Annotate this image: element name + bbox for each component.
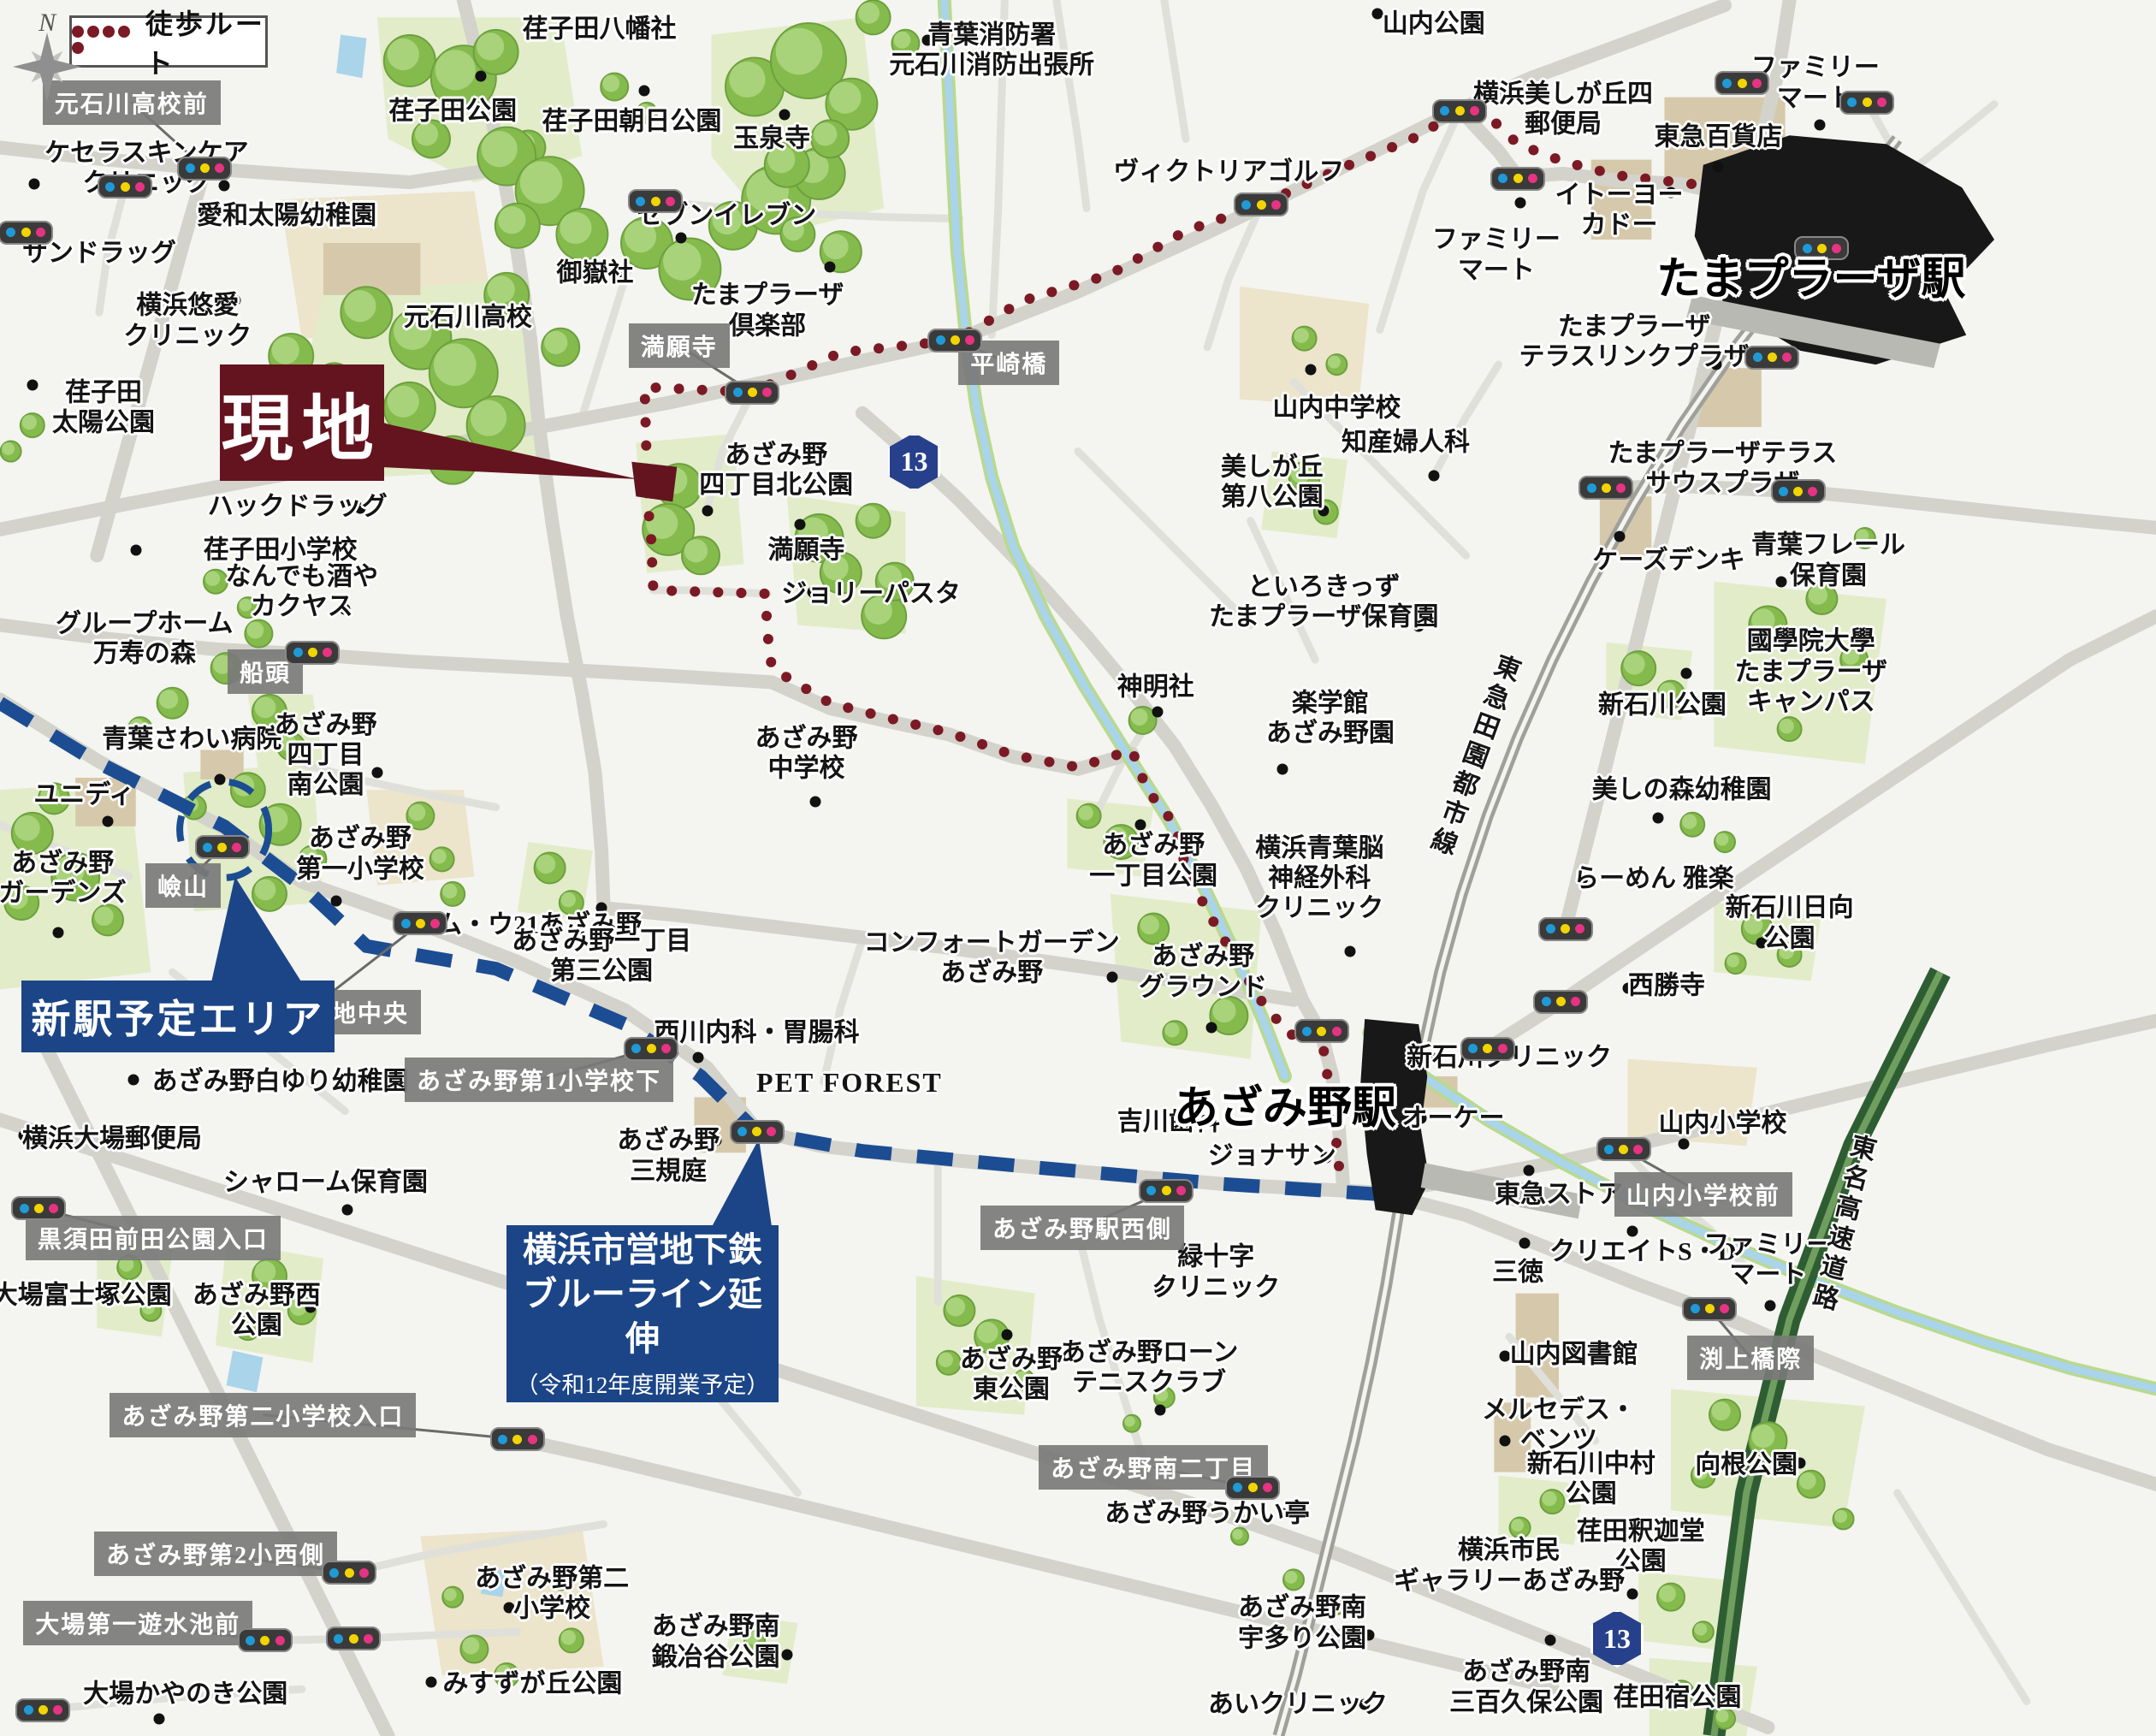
- landmark-dot-icon: [1519, 1237, 1530, 1248]
- map-label: あざみ野うかい亭: [1105, 1499, 1310, 1529]
- map-label: あざみ野南宇多り公園: [1238, 1593, 1366, 1654]
- tree-icon-highlight: [1131, 708, 1148, 726]
- tree-icon-highlight: [1779, 719, 1793, 733]
- map-label: ジョナサン: [1208, 1141, 1336, 1171]
- landmark-dot-icon: [29, 179, 40, 190]
- tree-icon-highlight: [408, 804, 425, 821]
- map-label: 愛和太陽幼稚園: [197, 200, 376, 230]
- traffic-signal-icon: [1839, 91, 1894, 115]
- map-label: 荏子田公園: [388, 96, 517, 126]
- bus-stop-label: 渕上橋際: [1687, 1336, 1814, 1380]
- traffic-signal-icon: [195, 835, 250, 859]
- bus-stop-label: 山内小学校前: [1614, 1172, 1792, 1217]
- tree-icon-highlight: [1711, 1401, 1730, 1420]
- landmark-dot-icon: [1652, 812, 1663, 823]
- tree-icon-highlight: [977, 1322, 998, 1343]
- traffic-signal-icon: [1533, 990, 1588, 1014]
- map-label: シャローム保育園: [223, 1167, 428, 1197]
- new-station-box: 新駅予定エリア: [21, 981, 334, 1052]
- tree-icon-highlight: [435, 50, 476, 90]
- map-label: 荏田宿公園: [1614, 1683, 1742, 1713]
- traffic-signal-icon: [1139, 1179, 1193, 1203]
- landmark-dot-icon: [779, 109, 791, 120]
- map-label: 美しの森幼稚園: [1592, 774, 1772, 804]
- tree-icon-highlight: [431, 849, 446, 863]
- map-label: あざみ野第二小学校: [475, 1563, 629, 1624]
- landmark-dot-icon: [1277, 763, 1288, 774]
- map-label: PET FOREST: [756, 1067, 943, 1099]
- bus-stop-label: あざみ野第1小学校下: [405, 1058, 673, 1102]
- landmark-dot-icon: [1764, 1300, 1775, 1311]
- map-label: あざみ野ローンテニスクラブ: [1060, 1337, 1239, 1398]
- map-label: 横浜悠愛クリニック: [123, 291, 252, 352]
- tree-icon-highlight: [94, 907, 113, 926]
- map-label: ユニディ: [33, 780, 134, 810]
- map-label: 玉泉寺: [733, 124, 810, 154]
- compass-north-label: N: [38, 9, 56, 38]
- traffic-signal-icon: [1596, 1137, 1651, 1161]
- tree-icon-highlight: [1328, 356, 1341, 369]
- map-label: コンフォートガーデンあざみ野: [864, 928, 1120, 989]
- map-label: ケーズデンキ: [1592, 546, 1745, 576]
- tree-icon-highlight: [602, 75, 619, 92]
- map-label: 國學院大學たまプラーザキャンパス: [1735, 626, 1888, 717]
- landmark-dot-icon: [475, 71, 486, 82]
- traffic-signal-icon: [0, 221, 53, 245]
- traffic-signal-icon: [624, 1037, 678, 1061]
- tree-icon-highlight: [388, 386, 419, 418]
- landmark-dot-icon: [1626, 1588, 1638, 1599]
- map-label: 緑十字クリニック: [1152, 1242, 1280, 1303]
- tree-icon-highlight: [246, 622, 264, 639]
- landmark-dot-icon: [1135, 819, 1146, 830]
- tree-icon-highlight: [159, 690, 178, 708]
- tree-icon-highlight: [946, 1297, 965, 1316]
- landmark-dot-icon: [341, 1205, 352, 1216]
- map-label: あざみ野三規庭: [617, 1126, 720, 1187]
- legend: 徒歩ルート: [69, 15, 269, 68]
- map-label: メルセデス・ベンツ: [1482, 1395, 1636, 1455]
- traffic-signal-icon: [1294, 1019, 1349, 1043]
- map-label: たまプラーザテラスリンクプラザ: [1519, 311, 1749, 372]
- traffic-signal-icon: [1234, 193, 1288, 216]
- site-label: 現地: [222, 371, 382, 475]
- tree-icon-highlight: [663, 242, 702, 281]
- landmark-dot-icon: [215, 774, 226, 785]
- landmark-dot-icon: [27, 380, 38, 391]
- landmark-dot-icon: [331, 896, 342, 907]
- tree-icon-highlight: [462, 1638, 479, 1655]
- tree-icon-highlight: [388, 39, 419, 70]
- map-label: 西勝寺: [1628, 971, 1705, 1001]
- map-label: 西川内科・胃腸科: [654, 1018, 860, 1048]
- landmark-dot-icon: [1814, 120, 1825, 131]
- landmark-dot-icon: [1544, 1635, 1555, 1646]
- map-label: らーめん 雅楽: [1573, 863, 1734, 893]
- map-label: あざみ野白ゆり幼稚園: [152, 1066, 409, 1096]
- map-label: 山内公園: [1383, 9, 1485, 39]
- legend-label: 徒歩ルート: [145, 3, 266, 81]
- traffic-signal-icon: [285, 641, 340, 665]
- map-label: あざみ野一丁目第三公園: [512, 927, 691, 987]
- compass-icon: N: [9, 9, 86, 111]
- station-name: たまプラーザ駅: [1656, 242, 1965, 306]
- landmark-dot-icon: [1679, 1139, 1690, 1150]
- tree-icon-highlight: [255, 1261, 276, 1283]
- landmark-dot-icon: [426, 1677, 437, 1688]
- tree-icon-highlight: [1232, 1529, 1242, 1539]
- tree-icon-highlight: [1140, 915, 1159, 934]
- minor-road: [1434, 364, 1499, 476]
- landmark-dot-icon: [825, 262, 836, 273]
- traffic-signal-icon: [1771, 479, 1826, 503]
- map-label: あいクリニック: [1208, 1690, 1388, 1720]
- map-label: 荏子田太陽公園: [52, 377, 155, 438]
- tree-icon-highlight: [729, 62, 765, 98]
- map-label: 青葉フレール保育園: [1751, 530, 1905, 591]
- map-label: 東急百貨店: [1654, 122, 1782, 152]
- tree-icon-highlight: [255, 880, 276, 901]
- tree-icon-highlight: [520, 161, 563, 204]
- blueline-box: 横浜市営地下鉄 ブルーライン延伸 （令和12年度開業予定）: [506, 1225, 779, 1402]
- map-label: 東急ストア: [1495, 1179, 1623, 1209]
- tree-icon-highlight: [1799, 1472, 1816, 1490]
- traffic-signal-icon: [1432, 99, 1487, 123]
- traffic-signal-icon: [1682, 1297, 1737, 1321]
- map-label: 青葉消防署元石川消防出張所: [889, 20, 1094, 80]
- landmark-dot-icon: [1614, 530, 1625, 542]
- map-label: あざみ野一丁目公園: [1089, 831, 1217, 892]
- map-label: あざみ野ガーデンズ: [0, 848, 127, 909]
- map-label: 新石川公園: [1598, 690, 1727, 720]
- traffic-signal-icon: [927, 329, 982, 353]
- map-label: 三徳: [1492, 1258, 1543, 1288]
- traffic-signal-icon: [11, 1196, 66, 1220]
- tree-icon-highlight: [814, 122, 837, 145]
- map-label: あざみ野グラウンド: [1139, 942, 1267, 1003]
- tree-icon-highlight: [471, 400, 506, 436]
- landmark-dot-icon: [639, 85, 650, 96]
- tree-icon-highlight: [1659, 1585, 1676, 1603]
- landmark-dot-icon: [1514, 198, 1525, 209]
- landmark-dot-icon: [702, 505, 713, 516]
- landmark-dot-icon: [1344, 945, 1355, 957]
- map-label: イトーヨーカドー: [1555, 180, 1684, 240]
- landmark-dot-icon: [1206, 1022, 1217, 1034]
- tree-icon-highlight: [477, 33, 504, 60]
- bus-stop-label: 満願寺: [629, 323, 730, 368]
- landmark-dot-icon: [128, 1075, 139, 1086]
- map-label: 大場富士塚公園: [0, 1280, 172, 1310]
- landmark-dot-icon: [1626, 1225, 1638, 1236]
- map-label: あざみ野南三百久保公園: [1449, 1657, 1603, 1718]
- map-label: 向根公園: [1695, 1450, 1798, 1480]
- tree-icon-highlight: [1694, 1623, 1707, 1636]
- landmark-dot-icon: [1523, 1164, 1534, 1176]
- map-label: みすずが丘公園: [442, 1668, 622, 1698]
- bus-stop-label: 大場第一遊水池前: [23, 1601, 252, 1645]
- traffic-signal-icon: [490, 1427, 545, 1451]
- landmark-dot-icon: [1152, 706, 1164, 717]
- map-label: 元石川高校: [404, 303, 532, 333]
- map-label: 山内中学校: [1272, 393, 1401, 423]
- map-label: 神明社: [1117, 672, 1194, 702]
- tree-icon-highlight: [858, 3, 880, 24]
- tree-icon-highlight: [544, 331, 567, 354]
- site-box: 現地: [220, 364, 384, 481]
- traffic-signal-icon: [1538, 917, 1593, 941]
- traffic-signal-icon: [177, 157, 232, 181]
- bus-stop-label: あざみ野第2小西側: [94, 1532, 337, 1576]
- tree-icon-highlight: [776, 28, 823, 75]
- map-label: 荏子田八幡社: [523, 15, 677, 44]
- map-label: ファミリーマート: [1432, 225, 1561, 286]
- traffic-signal-icon: [322, 1561, 376, 1585]
- map-label: なんでも酒やカクヤス: [226, 561, 379, 622]
- traffic-signal-icon: [1744, 346, 1799, 370]
- map-label: あざみ野第一小学校: [296, 824, 424, 885]
- landmark-dot-icon: [1499, 1350, 1510, 1361]
- landmark-dot-icon: [154, 1713, 165, 1724]
- tree-icon-highlight: [498, 206, 525, 234]
- access-map: 徒歩ルート N 現地 新駅予定エリア 横浜市営地下鉄 ブルーライン延伸 （令和1…: [0, 0, 2156, 1736]
- tree-icon-highlight: [205, 572, 220, 586]
- tree-icon-highlight: [22, 415, 37, 430]
- minor-road: [1164, 0, 1186, 139]
- traffic-signal-icon: [1225, 1476, 1280, 1500]
- tree-icon-highlight: [1834, 1510, 1847, 1523]
- water-area: [227, 1351, 264, 1393]
- tree-icon-highlight: [1716, 833, 1729, 846]
- map-label: 美しが丘第八公園: [1221, 453, 1324, 513]
- water-area: [336, 35, 366, 79]
- map-label: あざみ野四丁目北公園: [699, 440, 853, 501]
- tree-icon-highlight: [939, 1353, 953, 1367]
- tree-icon-highlight: [1212, 999, 1235, 1022]
- tree-icon-highlight: [488, 276, 515, 303]
- landmark-dot-icon: [1306, 364, 1317, 376]
- tree-icon-highlight: [1124, 1416, 1134, 1426]
- landmark-dot-icon: [1428, 470, 1439, 481]
- tree-icon-highlight: [858, 506, 880, 527]
- tree-icon-highlight: [1682, 815, 1697, 829]
- traffic-signal-icon: [628, 189, 683, 213]
- tree-icon-highlight: [829, 82, 861, 114]
- landmark-dot-icon: [103, 815, 114, 827]
- tree-icon-highlight: [823, 234, 849, 259]
- map-label: 満願寺: [767, 535, 844, 565]
- map-label: ジョリーパスタ: [781, 578, 961, 608]
- blueline-line1: 横浜市営地下鉄: [523, 1228, 762, 1272]
- landmark-dot-icon: [53, 927, 64, 938]
- bus-stop-label: 嶮山: [145, 863, 221, 908]
- landmark-dot-icon: [130, 545, 141, 556]
- map-label: 横浜大場郵便局: [22, 1123, 202, 1153]
- map-label: 山内図書館: [1510, 1339, 1638, 1369]
- traffic-signal-icon: [730, 1120, 785, 1144]
- tree-icon-highlight: [434, 343, 477, 386]
- new-station-label: 新駅予定エリア: [31, 988, 324, 1045]
- bus-stop-label: あざみ野第二小学校入口: [110, 1393, 416, 1437]
- bus-stop-label: あざみ野駅西側: [980, 1206, 1184, 1250]
- landmark-dot-icon: [693, 1052, 704, 1063]
- map-label: といろきっずたまプラーザ保育園: [1209, 572, 1439, 633]
- traffic-signal-icon: [1460, 1037, 1515, 1061]
- tree-icon-highlight: [684, 539, 708, 562]
- tree-icon-highlight: [15, 815, 40, 841]
- minor-road: [824, 939, 862, 1081]
- map-label: 青葉さわい病院: [102, 725, 281, 755]
- traffic-signal-icon: [1715, 71, 1769, 95]
- traffic-signal-icon: [725, 381, 779, 405]
- tree-icon-highlight: [561, 892, 576, 907]
- site-polygon: [631, 462, 677, 502]
- map-label: あざみ野四丁目南公園: [275, 710, 377, 801]
- tree-icon-highlight: [561, 1630, 576, 1644]
- map-label: 新石川中村公園: [1527, 1449, 1655, 1509]
- landmark-dot-icon: [809, 797, 820, 808]
- tree-icon-highlight: [1511, 1519, 1524, 1532]
- map-label: ヴィクトリアゴルフ: [1113, 157, 1344, 187]
- map-label: あざみ野西公園: [192, 1281, 321, 1342]
- tree-icon-highlight: [1285, 1571, 1298, 1584]
- landmark-dot-icon: [794, 518, 805, 530]
- traffic-signal-icon: [1490, 167, 1545, 191]
- traffic-signal-icon: [238, 1628, 293, 1652]
- tree-icon-highlight: [482, 131, 518, 167]
- blueline-line3: （令和12年度開業予定）: [515, 1366, 769, 1400]
- tree-icon-highlight: [1164, 1022, 1179, 1037]
- tree-icon-highlight: [1294, 328, 1308, 342]
- tree-icon-highlight: [560, 212, 591, 244]
- map-label: あざみ野中学校: [755, 723, 857, 784]
- map-label: ハックドラッグ: [208, 492, 388, 522]
- map-label: 新石川日向公園: [1726, 893, 1854, 954]
- tree-icon-highlight: [444, 1588, 457, 1601]
- tree-icon-highlight: [536, 855, 555, 874]
- map-label: 大場かやのき公園: [83, 1680, 287, 1709]
- map-label: 横浜青葉脳神経外科クリニック: [1255, 833, 1383, 924]
- tree-icon-highlight: [1624, 654, 1645, 675]
- traffic-signal-icon: [326, 1626, 381, 1650]
- map-label: あざみ野南鍛冶谷公園: [652, 1612, 780, 1673]
- map-label: 楽学館あざみ野園: [1266, 689, 1395, 750]
- tree-icon-highlight: [1751, 1425, 1774, 1448]
- landmark-dot-icon: [676, 232, 687, 243]
- landmark-dot-icon: [1680, 668, 1691, 679]
- traffic-signal-icon: [1578, 476, 1633, 500]
- station-name: あざみ野駅: [1174, 1072, 1396, 1136]
- tree-icon-highlight: [272, 336, 299, 364]
- tree-icon-highlight: [2, 442, 15, 455]
- landmark-dot-icon: [1001, 1330, 1012, 1341]
- landmark-dot-icon: [781, 1649, 792, 1660]
- tree-icon-highlight: [1727, 955, 1739, 968]
- bus-stop-label: 黒須田前田公園入口: [26, 1216, 281, 1260]
- tree-icon-highlight: [442, 884, 457, 898]
- map-label: 横浜市民ギャラリーあざみ野: [1394, 1536, 1625, 1597]
- blueline-line2: ブルーライン延伸: [506, 1272, 779, 1361]
- map-label: 荏子田朝日公園: [542, 106, 721, 136]
- map-label: オーケー: [1401, 1103, 1504, 1133]
- map-label: 山内小学校: [1658, 1108, 1786, 1138]
- landmark-dot-icon: [1713, 161, 1724, 172]
- map-label: グループホーム万寿の森: [56, 608, 233, 669]
- map-label: 知産婦人科: [1342, 428, 1470, 458]
- traffic-signal-icon: [15, 1698, 70, 1722]
- tree-icon-highlight: [344, 290, 376, 322]
- traffic-signal-icon: [98, 175, 152, 198]
- tree-icon-highlight: [255, 696, 276, 718]
- map-label: 御嶽社: [557, 258, 634, 287]
- landmark-dot-icon: [1154, 1404, 1165, 1415]
- map-label: 横浜美しが丘四郵便局: [1473, 79, 1653, 139]
- tree-icon-highlight: [1078, 805, 1093, 820]
- minor-road: [1898, 1493, 2027, 1701]
- map-label: あざみ野東公園: [960, 1345, 1063, 1406]
- traffic-signal-icon: [393, 911, 447, 935]
